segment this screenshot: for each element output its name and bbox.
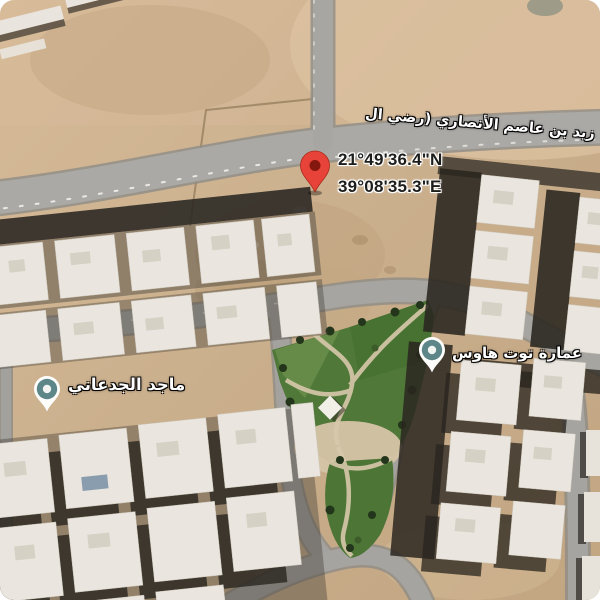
satellite-map-canvas[interactable]: زيد بن عاصم الأنصاري (رضي ال 21°49'36.4"… [0,0,600,600]
place-marker-majed-icon[interactable] [32,375,62,413]
location-pin-icon[interactable] [299,150,331,196]
place-marker-toot-house-icon[interactable] [417,336,447,374]
coordinate-longitude: 39°08'35.3"E [338,173,442,200]
coordinate-latitude: 21°49'36.4"N [338,146,442,173]
buildings-right-upper [421,156,600,355]
map-imagery [0,0,600,600]
place-label-majed[interactable]: ماجد الجدعاني [68,375,185,394]
pin-coordinates-label: 21°49'36.4"N 39°08'35.3"E [338,146,442,200]
place-label-toot-house[interactable]: عمارة توت هاوس [452,344,582,362]
